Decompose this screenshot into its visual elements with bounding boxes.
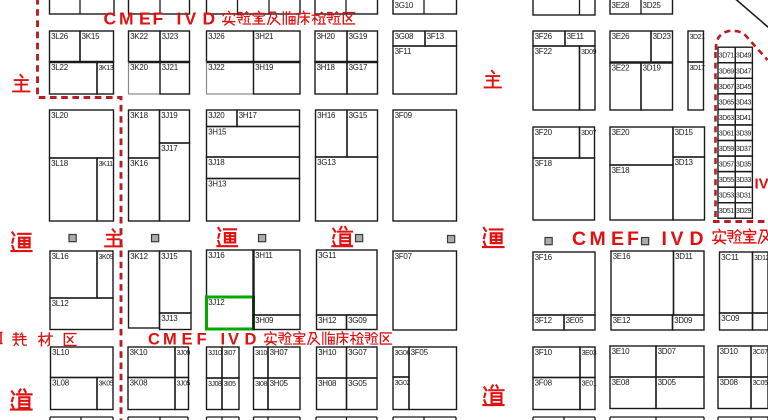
svg-text:3J13: 3J13 bbox=[161, 314, 178, 323]
svg-text:3D15: 3D15 bbox=[675, 128, 694, 137]
svg-text:3D49: 3D49 bbox=[736, 53, 751, 60]
svg-text:3D45: 3D45 bbox=[736, 84, 751, 91]
svg-text:3F16: 3F16 bbox=[535, 253, 553, 262]
svg-text:3H05: 3H05 bbox=[270, 379, 289, 388]
svg-text:M: M bbox=[163, 331, 177, 349]
svg-text:I: I bbox=[662, 228, 667, 250]
svg-text:3K18: 3K18 bbox=[130, 111, 148, 120]
svg-text:3H20: 3H20 bbox=[317, 32, 336, 41]
svg-text:C: C bbox=[148, 331, 160, 349]
svg-text:3E20: 3E20 bbox=[612, 128, 630, 137]
svg-text:3L26: 3L26 bbox=[51, 32, 69, 41]
svg-text:V: V bbox=[185, 9, 197, 29]
svg-text:3G15: 3G15 bbox=[349, 111, 368, 120]
svg-text:3I07: 3I07 bbox=[224, 350, 236, 357]
svg-text:3D19: 3D19 bbox=[643, 64, 662, 73]
svg-text:3L10: 3L10 bbox=[52, 348, 70, 357]
svg-text:3H15: 3H15 bbox=[208, 128, 227, 137]
svg-text:3K05: 3K05 bbox=[99, 381, 114, 388]
svg-text:3H18: 3H18 bbox=[317, 63, 336, 72]
svg-text:3C05: 3C05 bbox=[753, 380, 768, 387]
svg-text:3F12: 3F12 bbox=[535, 316, 553, 325]
svg-text:3H10: 3H10 bbox=[318, 348, 337, 357]
svg-text:3D21: 3D21 bbox=[690, 34, 705, 41]
svg-text:3K16: 3K16 bbox=[130, 159, 148, 168]
svg-text:E: E bbox=[182, 331, 193, 349]
svg-text:3D05: 3D05 bbox=[658, 378, 677, 387]
svg-text:3D55: 3D55 bbox=[719, 177, 734, 184]
svg-text:3D69: 3D69 bbox=[719, 68, 734, 75]
svg-text:3J22: 3J22 bbox=[208, 63, 225, 72]
svg-text:3J08: 3J08 bbox=[208, 381, 222, 388]
svg-text:3D31: 3D31 bbox=[736, 193, 751, 200]
svg-text:3D09: 3D09 bbox=[581, 49, 596, 56]
svg-text:D: D bbox=[245, 331, 257, 349]
svg-text:3K20: 3K20 bbox=[130, 63, 148, 72]
svg-text:3K12: 3K12 bbox=[130, 252, 148, 261]
svg-text:3K09: 3K09 bbox=[99, 254, 114, 261]
svg-text:3J17: 3J17 bbox=[161, 144, 178, 153]
svg-text:3D09: 3D09 bbox=[674, 316, 693, 325]
svg-text:3F08: 3F08 bbox=[535, 379, 553, 388]
svg-text:3L20: 3L20 bbox=[51, 111, 69, 120]
svg-text:3D12: 3D12 bbox=[754, 255, 768, 262]
svg-text:3I05: 3I05 bbox=[224, 381, 236, 388]
svg-text:3K11: 3K11 bbox=[99, 161, 114, 168]
svg-text:3D37: 3D37 bbox=[736, 146, 751, 153]
svg-text:E: E bbox=[611, 228, 624, 250]
svg-text:3L18: 3L18 bbox=[51, 159, 69, 168]
svg-text:3G09: 3G09 bbox=[348, 316, 367, 325]
svg-text:3D39: 3D39 bbox=[736, 130, 751, 137]
svg-text:3E16: 3E16 bbox=[613, 252, 631, 261]
svg-text:3C07: 3C07 bbox=[753, 349, 768, 356]
svg-text:3J09: 3J09 bbox=[177, 350, 191, 357]
svg-text:3F10: 3F10 bbox=[535, 348, 553, 357]
svg-text:3D07: 3D07 bbox=[658, 347, 677, 356]
svg-text:3D51: 3D51 bbox=[719, 208, 734, 215]
svg-text:3I08: 3I08 bbox=[255, 381, 267, 388]
svg-text:C: C bbox=[572, 228, 586, 250]
svg-text:3G13: 3G13 bbox=[317, 158, 336, 167]
svg-text:3E03: 3E03 bbox=[582, 350, 597, 357]
svg-text:3J19: 3J19 bbox=[161, 111, 178, 120]
svg-text:F: F bbox=[197, 331, 207, 349]
svg-text:D: D bbox=[690, 228, 704, 250]
svg-text:3G05: 3G05 bbox=[348, 379, 367, 388]
svg-text:3F09: 3F09 bbox=[395, 111, 413, 120]
svg-text:M: M bbox=[590, 228, 606, 250]
svg-text:3K15: 3K15 bbox=[82, 32, 100, 41]
svg-text:3E26: 3E26 bbox=[612, 32, 630, 41]
svg-text:3L08: 3L08 bbox=[52, 379, 70, 388]
svg-text:3E22: 3E22 bbox=[612, 64, 630, 73]
svg-text:3G06: 3G06 bbox=[395, 350, 411, 357]
svg-text:3J12: 3J12 bbox=[208, 298, 225, 307]
svg-text:3H17: 3H17 bbox=[239, 111, 258, 120]
svg-text:3K08: 3K08 bbox=[130, 379, 148, 388]
svg-text:IV: IV bbox=[755, 176, 768, 193]
svg-text:3F07: 3F07 bbox=[395, 252, 413, 261]
svg-text:V: V bbox=[228, 331, 239, 349]
svg-text:3G08: 3G08 bbox=[395, 32, 414, 41]
svg-text:3H11: 3H11 bbox=[255, 251, 273, 260]
svg-text:3L22: 3L22 bbox=[51, 63, 69, 72]
svg-text:3D35: 3D35 bbox=[736, 162, 751, 169]
svg-text:3E05: 3E05 bbox=[566, 316, 584, 325]
svg-text:I: I bbox=[221, 331, 226, 349]
svg-text:3D11: 3D11 bbox=[675, 252, 693, 261]
svg-text:F: F bbox=[153, 9, 164, 29]
svg-text:3C11: 3C11 bbox=[721, 253, 739, 262]
svg-text:3J21: 3J21 bbox=[162, 63, 179, 72]
svg-text:3D47: 3D47 bbox=[736, 68, 751, 75]
svg-text:3D08: 3D08 bbox=[720, 378, 739, 387]
svg-text:3J16: 3J16 bbox=[208, 251, 225, 260]
svg-text:3G07: 3G07 bbox=[348, 348, 367, 357]
svg-text:3D61: 3D61 bbox=[719, 130, 734, 137]
svg-text:3L16: 3L16 bbox=[52, 252, 70, 261]
svg-text:3E11: 3E11 bbox=[567, 32, 585, 41]
svg-text:3D33: 3D33 bbox=[736, 177, 751, 184]
svg-text:3I10: 3I10 bbox=[255, 350, 267, 357]
svg-text:3D53: 3D53 bbox=[719, 193, 734, 200]
svg-text:3H08: 3H08 bbox=[318, 379, 337, 388]
svg-text:3F20: 3F20 bbox=[535, 128, 553, 137]
svg-text:3H09: 3H09 bbox=[255, 316, 274, 325]
svg-text:3H12: 3H12 bbox=[318, 316, 337, 325]
svg-text:3F18: 3F18 bbox=[535, 159, 553, 168]
svg-text:3J05: 3J05 bbox=[177, 381, 191, 388]
svg-text:3E12: 3E12 bbox=[613, 316, 631, 325]
svg-text:M: M bbox=[119, 9, 134, 29]
svg-text:3E01: 3E01 bbox=[582, 381, 597, 388]
svg-text:3F26: 3F26 bbox=[535, 32, 553, 41]
svg-text:I: I bbox=[177, 9, 182, 29]
svg-text:C: C bbox=[104, 9, 117, 29]
svg-text:3D07: 3D07 bbox=[581, 130, 596, 137]
svg-text:3D29: 3D29 bbox=[736, 208, 751, 215]
svg-text:3F13: 3F13 bbox=[427, 32, 445, 41]
svg-text:3G11: 3G11 bbox=[318, 251, 337, 260]
svg-text:3E28: 3E28 bbox=[612, 1, 630, 10]
svg-text:3D43: 3D43 bbox=[736, 99, 751, 106]
svg-text:3K10: 3K10 bbox=[130, 348, 148, 357]
svg-text:3D13: 3D13 bbox=[675, 158, 694, 167]
svg-text:3G02: 3G02 bbox=[395, 380, 411, 387]
svg-text:3D57: 3D57 bbox=[719, 162, 734, 169]
svg-text:3H21: 3H21 bbox=[255, 32, 274, 41]
svg-text:3L12: 3L12 bbox=[52, 299, 70, 308]
svg-text:3K13: 3K13 bbox=[99, 65, 114, 72]
svg-text:3E10: 3E10 bbox=[612, 347, 630, 356]
svg-text:E: E bbox=[139, 9, 151, 29]
svg-text:3G19: 3G19 bbox=[349, 32, 368, 41]
svg-text:3D23: 3D23 bbox=[653, 32, 672, 41]
svg-text:3D71: 3D71 bbox=[719, 53, 734, 60]
svg-text:3H13: 3H13 bbox=[208, 180, 227, 189]
svg-text:3G10: 3G10 bbox=[395, 1, 414, 10]
svg-text:3J23: 3J23 bbox=[162, 32, 179, 41]
svg-text:3F22: 3F22 bbox=[535, 47, 553, 56]
svg-text:3J10: 3J10 bbox=[208, 350, 222, 357]
svg-text:3D65: 3D65 bbox=[719, 99, 734, 106]
svg-text:3J18: 3J18 bbox=[208, 158, 225, 167]
svg-text:3D59: 3D59 bbox=[719, 146, 734, 153]
svg-text:3H19: 3H19 bbox=[255, 63, 274, 72]
svg-text:3D25: 3D25 bbox=[643, 1, 662, 10]
svg-text:3F05: 3F05 bbox=[411, 348, 429, 357]
svg-text:3J15: 3J15 bbox=[161, 252, 178, 261]
svg-text:3K22: 3K22 bbox=[130, 32, 148, 41]
svg-text:3D41: 3D41 bbox=[736, 115, 751, 122]
svg-text:3E08: 3E08 bbox=[612, 378, 630, 387]
svg-text:3H16: 3H16 bbox=[317, 111, 336, 120]
svg-text:D: D bbox=[203, 9, 216, 29]
svg-text:3F11: 3F11 bbox=[395, 47, 412, 56]
svg-text:3D67: 3D67 bbox=[719, 84, 734, 91]
svg-text:3G17: 3G17 bbox=[349, 63, 368, 72]
svg-text:V: V bbox=[671, 228, 684, 250]
svg-text:3D63: 3D63 bbox=[719, 115, 734, 122]
svg-text:F: F bbox=[627, 228, 639, 250]
svg-text:3D10: 3D10 bbox=[720, 347, 739, 356]
svg-text:3D17: 3D17 bbox=[690, 65, 705, 72]
svg-text:3H07: 3H07 bbox=[270, 348, 289, 357]
svg-text:3J26: 3J26 bbox=[208, 32, 225, 41]
svg-text:3J20: 3J20 bbox=[208, 111, 225, 120]
svg-text:3C09: 3C09 bbox=[721, 314, 740, 323]
svg-text:3E18: 3E18 bbox=[612, 166, 630, 175]
